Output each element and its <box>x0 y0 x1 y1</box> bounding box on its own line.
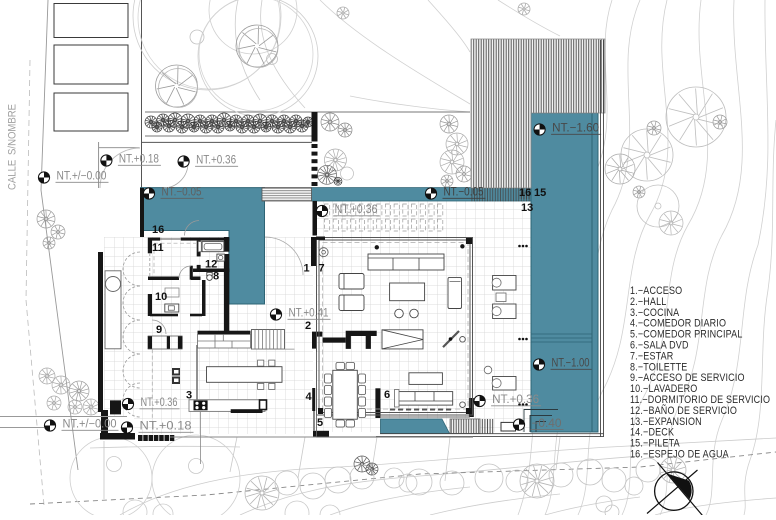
svg-text:3: 3 <box>186 390 192 402</box>
svg-text:11: 11 <box>152 242 164 254</box>
svg-text:NT.−1.60: NT.−1.60 <box>552 123 599 135</box>
svg-text:16: 16 <box>519 187 531 199</box>
svg-text:NT.−0.05: NT.−0.05 <box>162 187 202 199</box>
svg-text:NT.+0.36: NT.+0.36 <box>492 394 539 406</box>
svg-text:15: 15 <box>534 187 546 199</box>
svg-text:12.−BAÑO DE SERVICIO: 12.−BAÑO DE SERVICIO <box>630 403 737 417</box>
svg-text:16.−ESPEJO DE AGUA: 16.−ESPEJO DE AGUA <box>630 449 729 461</box>
svg-text:CALLE S/NOMBRE: CALLE S/NOMBRE <box>7 104 19 190</box>
svg-text:1: 1 <box>304 263 310 275</box>
svg-text:NT.+0.36: NT.+0.36 <box>141 397 178 409</box>
svg-text:10: 10 <box>155 291 167 303</box>
svg-text:NT.+0.18: NT.+0.18 <box>119 154 159 166</box>
svg-text:NT.+/−0.00: NT.+/−0.00 <box>63 419 117 431</box>
svg-text:NT.+/−0.00: NT.+/−0.00 <box>57 171 107 183</box>
svg-text:2: 2 <box>305 320 311 332</box>
svg-text:13: 13 <box>521 202 533 214</box>
svg-text:NT.−1.00: NT.−1.00 <box>552 358 590 370</box>
svg-text:9: 9 <box>156 324 162 336</box>
svg-text:12: 12 <box>205 259 217 271</box>
svg-text:5: 5 <box>317 417 323 429</box>
svg-text:8: 8 <box>213 271 219 283</box>
svg-text:NT.+0.36: NT.+0.36 <box>196 155 236 167</box>
svg-text:16: 16 <box>152 224 164 236</box>
svg-text:4: 4 <box>306 391 313 403</box>
svg-text:NT.−0.05: NT.−0.05 <box>444 187 484 199</box>
svg-text:−0.40: −0.40 <box>532 418 562 430</box>
svg-text:NT.+0.18: NT.+0.18 <box>140 421 192 433</box>
svg-text:7: 7 <box>319 263 325 275</box>
svg-text:NT.+0.36: NT.+0.36 <box>335 204 378 216</box>
svg-text:NT.+0.41: NT.+0.41 <box>289 308 329 320</box>
svg-text:6: 6 <box>384 389 390 401</box>
